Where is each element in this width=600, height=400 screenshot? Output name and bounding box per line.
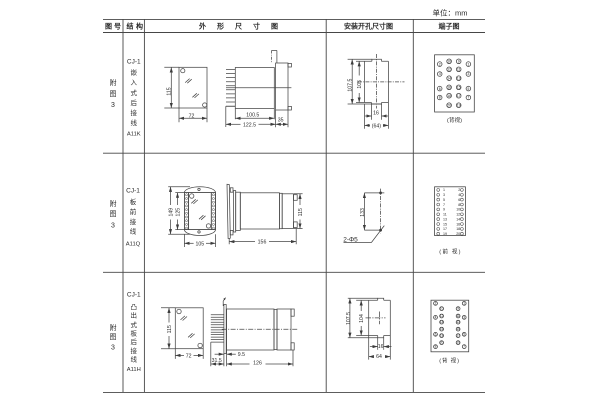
svg-text:100.5: 100.5 [246, 113, 259, 119]
svg-text:式: 式 [131, 88, 138, 97]
svg-text:图: 图 [110, 210, 117, 218]
svg-text:线: 线 [131, 118, 138, 127]
svg-text:4: 4 [439, 72, 441, 76]
svg-text:CJ-1: CJ-1 [127, 59, 141, 66]
svg-text:5: 5 [443, 198, 445, 202]
svg-text:11: 11 [457, 68, 461, 72]
svg-text:2-Φ5: 2-Φ5 [343, 236, 358, 243]
svg-text:7: 7 [467, 96, 469, 100]
svg-text:16: 16 [378, 344, 384, 350]
svg-text:18: 18 [456, 227, 460, 231]
svg-text:3: 3 [111, 345, 115, 352]
svg-text:后: 后 [131, 98, 138, 107]
svg-text:(前 视): (前 视) [439, 248, 461, 256]
svg-text:A11Q: A11Q [126, 242, 141, 248]
svg-text:18: 18 [447, 94, 451, 98]
svg-text:4: 4 [435, 316, 437, 320]
svg-text:105: 105 [195, 242, 204, 248]
svg-text:结构: 结构 [126, 22, 146, 31]
svg-text:19: 19 [456, 341, 460, 345]
svg-text:接: 接 [131, 108, 138, 117]
svg-text:16: 16 [447, 86, 451, 90]
svg-text:7: 7 [443, 203, 445, 207]
svg-text:前: 前 [130, 207, 137, 216]
svg-text:2: 2 [435, 302, 437, 306]
svg-text:图号: 图号 [105, 22, 123, 31]
svg-text:6: 6 [435, 332, 437, 336]
svg-text:附: 附 [110, 323, 117, 332]
svg-text:线: 线 [130, 227, 137, 236]
svg-text:3: 3 [463, 316, 465, 320]
svg-text:19: 19 [443, 232, 447, 236]
svg-text:1: 1 [443, 188, 445, 192]
svg-text:8: 8 [458, 203, 460, 207]
svg-text:A11K: A11K [127, 131, 141, 137]
svg-text:接: 接 [131, 346, 138, 355]
svg-text:CJ-1: CJ-1 [126, 188, 140, 195]
svg-text:11: 11 [456, 314, 460, 318]
svg-text:149: 149 [168, 208, 174, 217]
svg-text:122.5: 122.5 [243, 123, 256, 129]
svg-text:16: 16 [373, 110, 379, 116]
svg-text:15: 15 [443, 222, 447, 226]
svg-text:64: 64 [376, 354, 382, 360]
svg-text:单位：mm: 单位：mm [433, 8, 468, 18]
svg-text:图: 图 [110, 333, 117, 341]
svg-text:板: 板 [130, 197, 137, 206]
svg-text:3: 3 [111, 223, 115, 230]
svg-text:115: 115 [166, 87, 172, 95]
svg-text:10: 10 [456, 208, 460, 212]
svg-text:1: 1 [463, 302, 465, 306]
svg-text:CJ-1: CJ-1 [127, 291, 141, 298]
svg-text:17: 17 [443, 227, 447, 231]
svg-text:6: 6 [458, 198, 460, 202]
svg-text:13: 13 [443, 217, 447, 221]
svg-text:安装开孔尺寸图: 安装开孔尺寸图 [344, 22, 393, 31]
svg-text:125: 125 [175, 208, 181, 217]
svg-text:105: 105 [357, 80, 363, 89]
svg-text:附: 附 [110, 199, 117, 208]
svg-text:凸: 凸 [131, 303, 138, 311]
svg-text:线: 线 [131, 355, 138, 364]
svg-text:20: 20 [456, 232, 460, 236]
svg-text:9: 9 [457, 307, 459, 311]
svg-text:2: 2 [439, 62, 441, 66]
svg-text:16: 16 [456, 222, 460, 226]
svg-text:14: 14 [440, 320, 444, 324]
svg-text:3: 3 [467, 72, 469, 76]
svg-text:14: 14 [456, 217, 460, 221]
svg-text:3: 3 [111, 102, 115, 109]
svg-text:31.5: 31.5 [212, 358, 222, 364]
svg-text:17: 17 [456, 334, 460, 338]
svg-text:18: 18 [440, 334, 444, 338]
svg-text:附: 附 [110, 78, 117, 87]
svg-text:入: 入 [131, 80, 138, 87]
svg-text:19: 19 [457, 103, 461, 107]
svg-text:7: 7 [463, 345, 465, 349]
svg-text:72: 72 [189, 113, 195, 119]
svg-text:3: 3 [443, 193, 445, 197]
svg-text:20: 20 [440, 341, 444, 345]
svg-text:外形尺寸图: 外形尺寸图 [199, 22, 289, 31]
svg-text:12: 12 [447, 68, 451, 72]
svg-text:1: 1 [467, 62, 469, 66]
svg-text:12: 12 [456, 213, 460, 217]
svg-text:17: 17 [457, 94, 461, 98]
svg-text:20: 20 [447, 103, 451, 107]
svg-text:72: 72 [186, 354, 192, 360]
svg-text:11: 11 [443, 213, 447, 217]
svg-text:后: 后 [131, 337, 138, 346]
svg-text:13: 13 [456, 320, 460, 324]
svg-text:10: 10 [440, 307, 444, 311]
svg-text:15: 15 [457, 86, 461, 90]
svg-text:(背 视): (背 视) [439, 357, 459, 365]
svg-text:15: 15 [456, 327, 460, 331]
svg-text:5: 5 [467, 87, 469, 91]
svg-text:5: 5 [463, 332, 465, 336]
svg-text:9: 9 [458, 60, 460, 64]
svg-text:107.5: 107.5 [346, 312, 352, 325]
svg-text:接: 接 [130, 217, 137, 226]
svg-text:10: 10 [447, 60, 451, 64]
svg-text:115: 115 [298, 208, 304, 216]
svg-text:4: 4 [458, 193, 460, 197]
svg-text:A11H: A11H [127, 367, 141, 373]
svg-text:图: 图 [110, 90, 117, 98]
svg-text:133: 133 [360, 208, 366, 217]
svg-text:8: 8 [435, 345, 437, 349]
svg-text:9: 9 [443, 208, 445, 212]
svg-text:16: 16 [440, 327, 444, 331]
svg-text:8: 8 [439, 96, 441, 100]
svg-text:6: 6 [439, 87, 441, 91]
svg-text:端子图: 端子图 [439, 22, 460, 31]
svg-text:板: 板 [131, 329, 138, 338]
svg-text:出: 出 [131, 311, 138, 320]
svg-text:嵌: 嵌 [131, 69, 138, 77]
svg-text:35: 35 [278, 118, 284, 124]
svg-text:107.5: 107.5 [347, 78, 353, 91]
svg-text:115: 115 [167, 325, 173, 333]
svg-text:13: 13 [457, 76, 461, 80]
svg-text:156: 156 [258, 240, 267, 246]
svg-text:(64): (64) [372, 124, 381, 130]
svg-text:104: 104 [359, 314, 365, 323]
svg-text:126: 126 [253, 361, 262, 367]
svg-text:9.5: 9.5 [238, 352, 245, 358]
svg-text:14: 14 [447, 76, 451, 80]
svg-text:式: 式 [131, 320, 138, 329]
svg-text:(背视): (背视) [447, 116, 462, 124]
svg-text:12: 12 [440, 314, 444, 318]
svg-text:2: 2 [458, 188, 460, 192]
